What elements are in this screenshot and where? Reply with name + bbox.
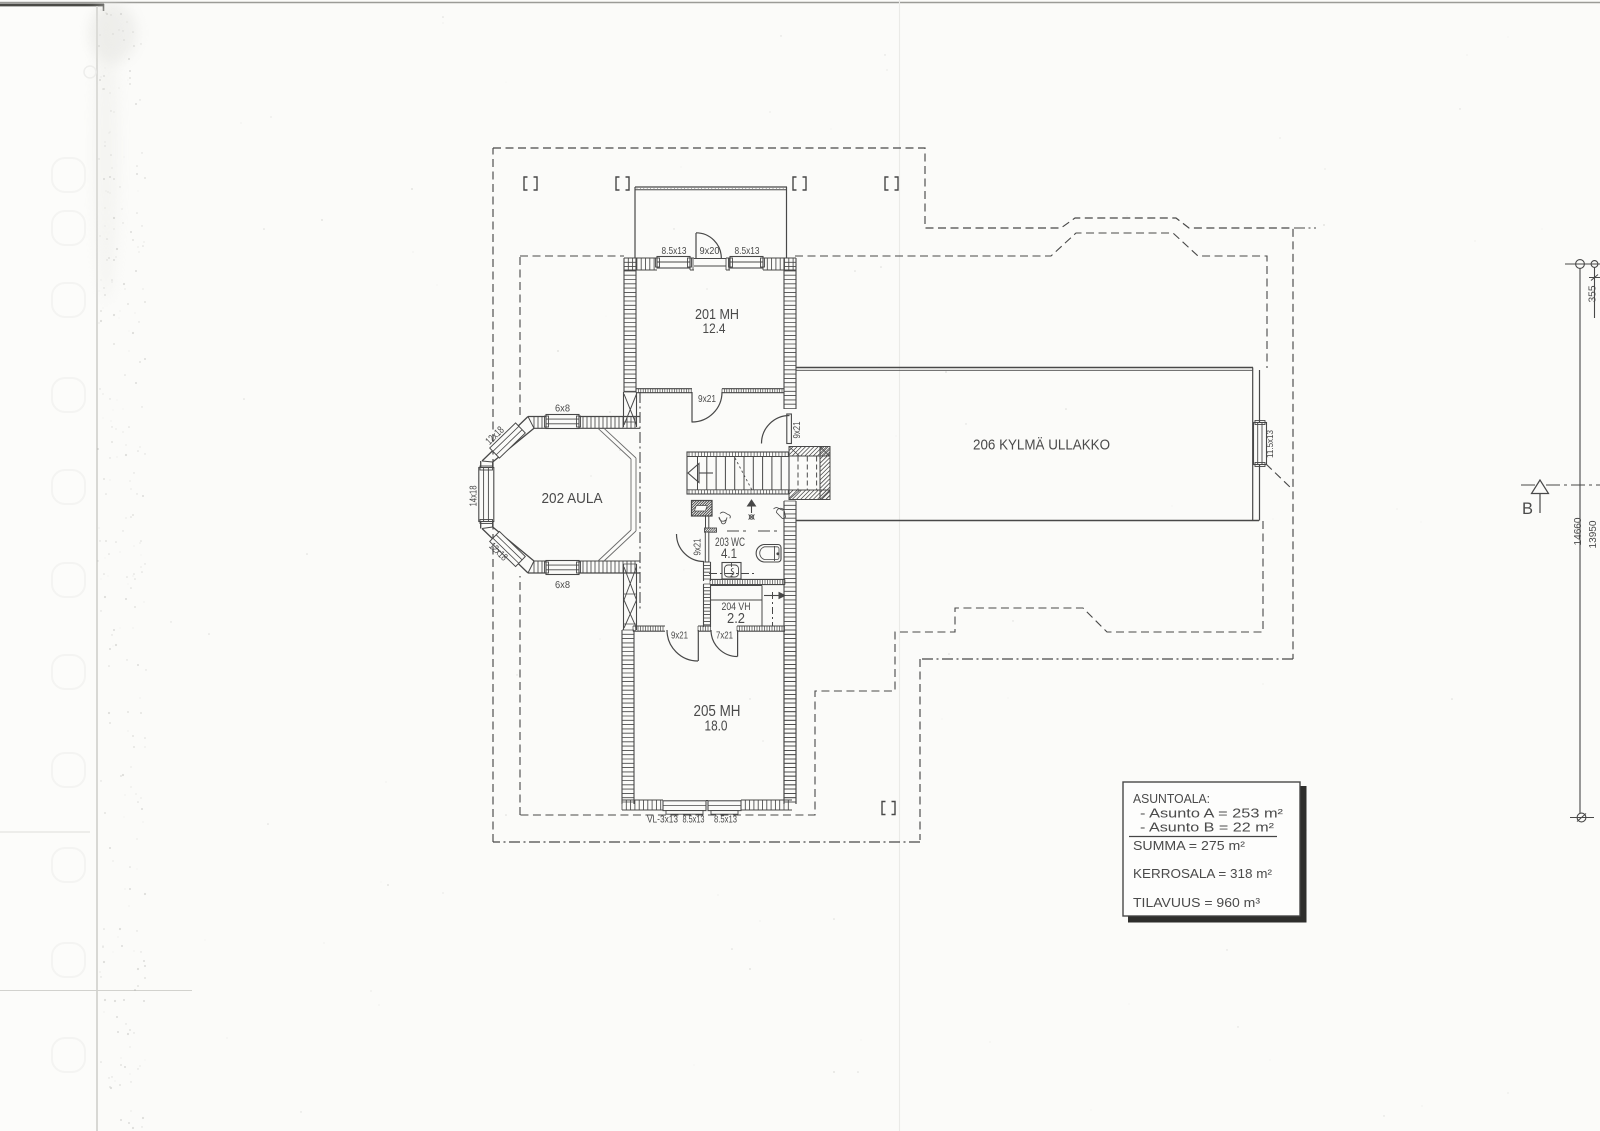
svg-text:8.5x13: 8.5x13: [735, 245, 760, 257]
svg-text:355: 355: [1587, 285, 1599, 302]
svg-text:9x20: 9x20: [700, 245, 720, 257]
svg-text:202 AULA: 202 AULA: [542, 490, 603, 507]
svg-text:7x21: 7x21: [716, 630, 733, 642]
svg-text:13950: 13950: [1587, 520, 1599, 548]
svg-text:8.5x13: 8.5x13: [714, 814, 737, 826]
svg-text:8.5x13: 8.5x13: [662, 245, 687, 257]
svg-text:14x18: 14x18: [468, 485, 480, 506]
svg-text:TILAVUUS = 960 m³: TILAVUUS = 960 m³: [1133, 895, 1261, 910]
svg-text:18.0: 18.0: [705, 719, 728, 735]
svg-text:9x21: 9x21: [791, 421, 803, 438]
svg-text:205 MH: 205 MH: [694, 703, 741, 720]
svg-text:12.4: 12.4: [703, 320, 726, 336]
svg-text:VL-3x13: VL-3x13: [647, 814, 678, 826]
svg-text:9x21: 9x21: [671, 630, 688, 642]
svg-text:B: B: [1522, 500, 1533, 518]
svg-text:11.5x13: 11.5x13: [1265, 430, 1276, 458]
svg-text:- Asunto A = 253 m²: - Asunto A = 253 m²: [1140, 806, 1284, 821]
svg-text:ASUNTOALA:: ASUNTOALA:: [1133, 791, 1210, 806]
svg-text:2.2: 2.2: [727, 610, 745, 627]
svg-text:- Asunto B = 22 m²: - Asunto B = 22 m²: [1140, 820, 1275, 835]
svg-text:SUMMA = 275 m²: SUMMA = 275 m²: [1133, 838, 1246, 853]
svg-text:9x21: 9x21: [692, 538, 704, 555]
svg-text:KERROSALA = 318 m²: KERROSALA = 318 m²: [1133, 866, 1273, 881]
svg-text:6x8: 6x8: [555, 579, 570, 591]
svg-text:8.5x13: 8.5x13: [683, 814, 705, 826]
svg-text:6x8: 6x8: [555, 403, 570, 415]
svg-text:206 KYLMÄ ULLAKKO: 206 KYLMÄ ULLAKKO: [973, 437, 1110, 454]
svg-text:4.1: 4.1: [721, 545, 737, 561]
svg-text:9x21: 9x21: [698, 393, 716, 405]
svg-text:14660: 14660: [1572, 517, 1584, 545]
